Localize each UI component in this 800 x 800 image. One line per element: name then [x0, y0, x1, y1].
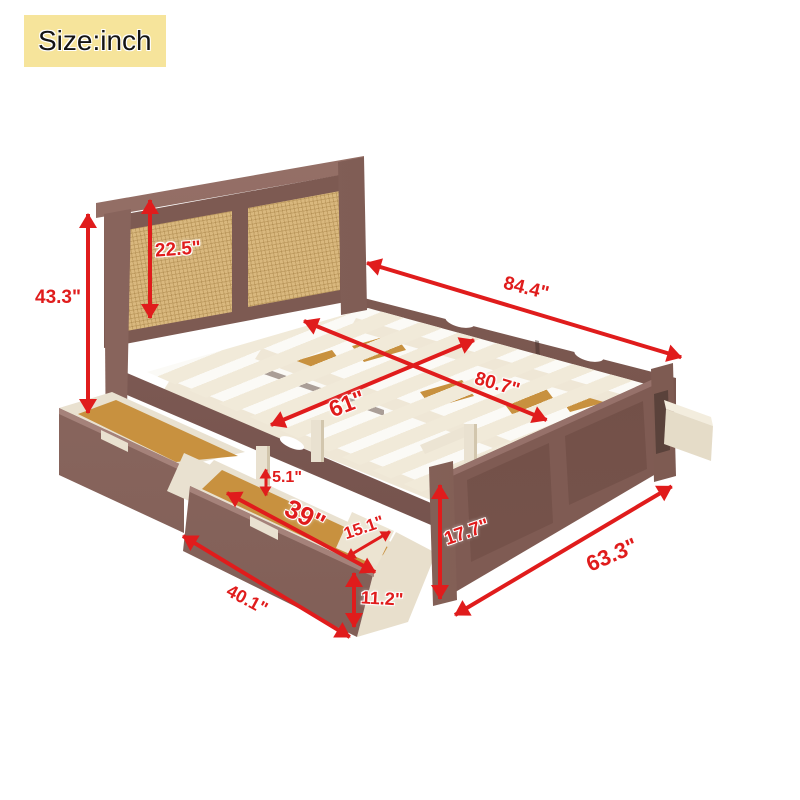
dim-arrow-headboard-panel-height	[148, 200, 152, 318]
support-leg	[464, 424, 477, 464]
dim-arrow-headboard-height	[86, 214, 90, 413]
dim-label-headboard-panel-height: 22.5"	[154, 237, 201, 262]
dim-label-overall-length: 84.4"	[501, 273, 551, 305]
dim-label-drawer-divider-height: 5.1"	[272, 469, 302, 487]
dim-label-headboard-height: 43.3"	[35, 287, 81, 309]
product-dimension-diagram: 43.3" 22.5" 84.4" 80.7" 61" 5.1" 39" 15.…	[0, 0, 800, 800]
dim-arrow-drawer-front-height	[352, 573, 356, 627]
dim-label-side-rail-length: 63.3"	[582, 533, 641, 578]
size-unit-badge: Size:inch	[24, 15, 166, 67]
support-leg	[311, 420, 324, 462]
dim-arrow-drawer-divider-height	[265, 470, 268, 496]
dim-label-drawer-front-height: 11.2"	[360, 587, 404, 610]
dim-arrow-footboard-height	[438, 485, 442, 599]
